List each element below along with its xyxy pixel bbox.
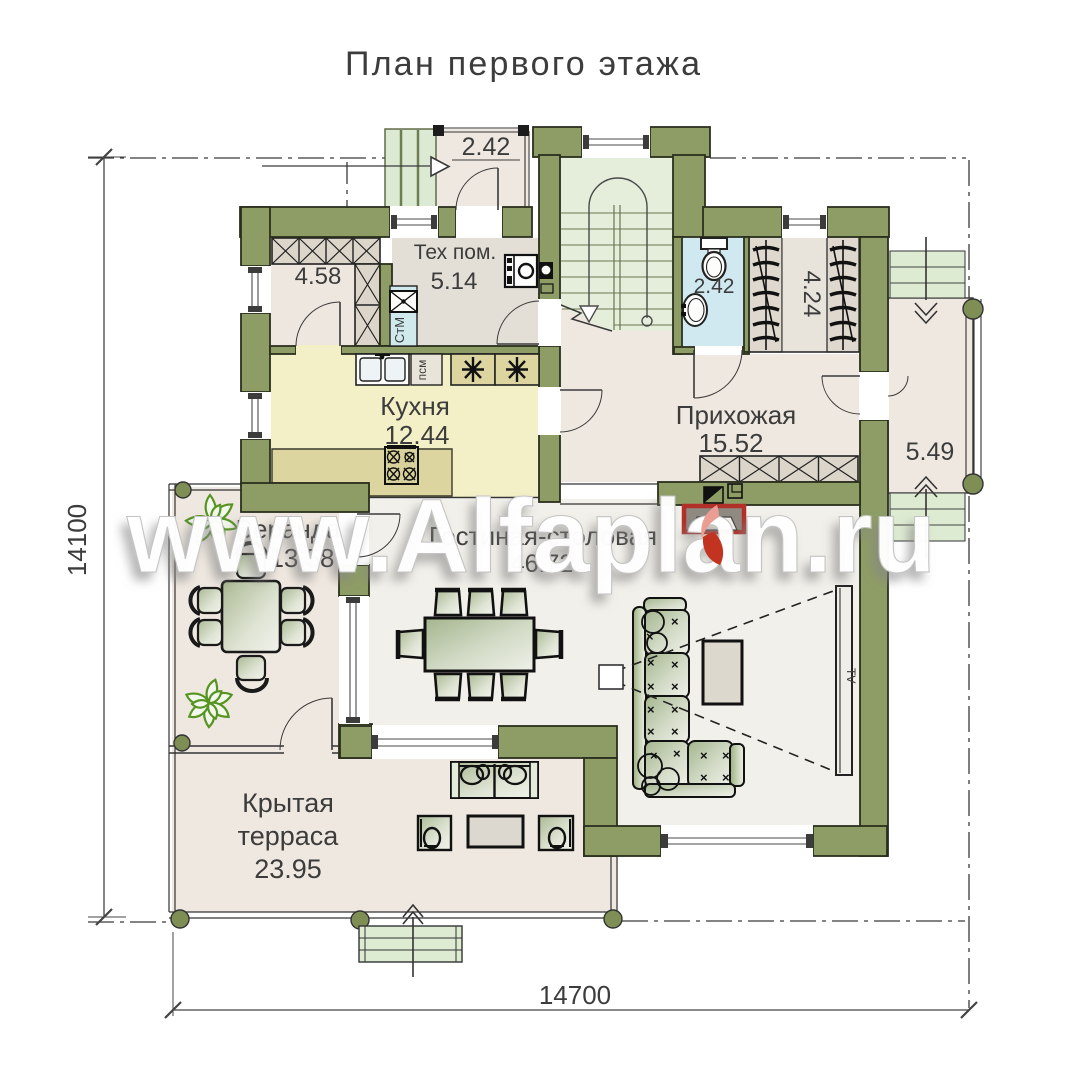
svg-text:терраса: терраса: [238, 821, 340, 851]
svg-text:×: ×: [671, 679, 679, 694]
svg-text:2.42: 2.42: [462, 133, 511, 161]
svg-text:×: ×: [722, 770, 730, 785]
svg-text:×: ×: [722, 748, 730, 763]
svg-text:5.49: 5.49: [906, 438, 955, 466]
svg-text:4.58: 4.58: [295, 263, 342, 290]
svg-text:СтМ: СтМ: [392, 317, 407, 343]
svg-text:×: ×: [700, 748, 708, 763]
svg-text:ТV: ТV: [844, 668, 858, 683]
svg-text:×: ×: [671, 724, 679, 739]
svg-text:×: ×: [650, 748, 658, 763]
svg-text:×: ×: [646, 629, 654, 644]
svg-text:Тех пом.: Тех пом.: [414, 241, 497, 264]
svg-text:15.52: 15.52: [698, 428, 763, 458]
svg-text:×: ×: [673, 746, 681, 761]
svg-text:Кухня: Кухня: [380, 391, 450, 421]
svg-text:псм: псм: [415, 360, 429, 381]
svg-text:14100: 14100: [62, 504, 92, 576]
svg-text:2.42: 2.42: [694, 275, 735, 298]
svg-text:×: ×: [700, 770, 708, 785]
svg-text:14700: 14700: [539, 980, 611, 1010]
svg-text:×: ×: [647, 702, 655, 717]
svg-text:4.24: 4.24: [798, 271, 825, 318]
svg-text:×: ×: [647, 724, 655, 739]
svg-text:План первого этажа: План первого этажа: [345, 45, 703, 83]
svg-text:Прихожая: Прихожая: [676, 400, 796, 430]
svg-text:5.14: 5.14: [431, 268, 478, 295]
svg-text:23.95: 23.95: [254, 854, 322, 884]
svg-text:×: ×: [647, 679, 655, 694]
svg-text:www.Alfaplan.ru: www.Alfaplan.ru: [126, 478, 936, 595]
svg-text:12.44: 12.44: [384, 420, 449, 450]
svg-text:Крытая: Крытая: [242, 788, 334, 818]
svg-text:×: ×: [671, 657, 679, 672]
svg-text:×: ×: [671, 614, 679, 629]
